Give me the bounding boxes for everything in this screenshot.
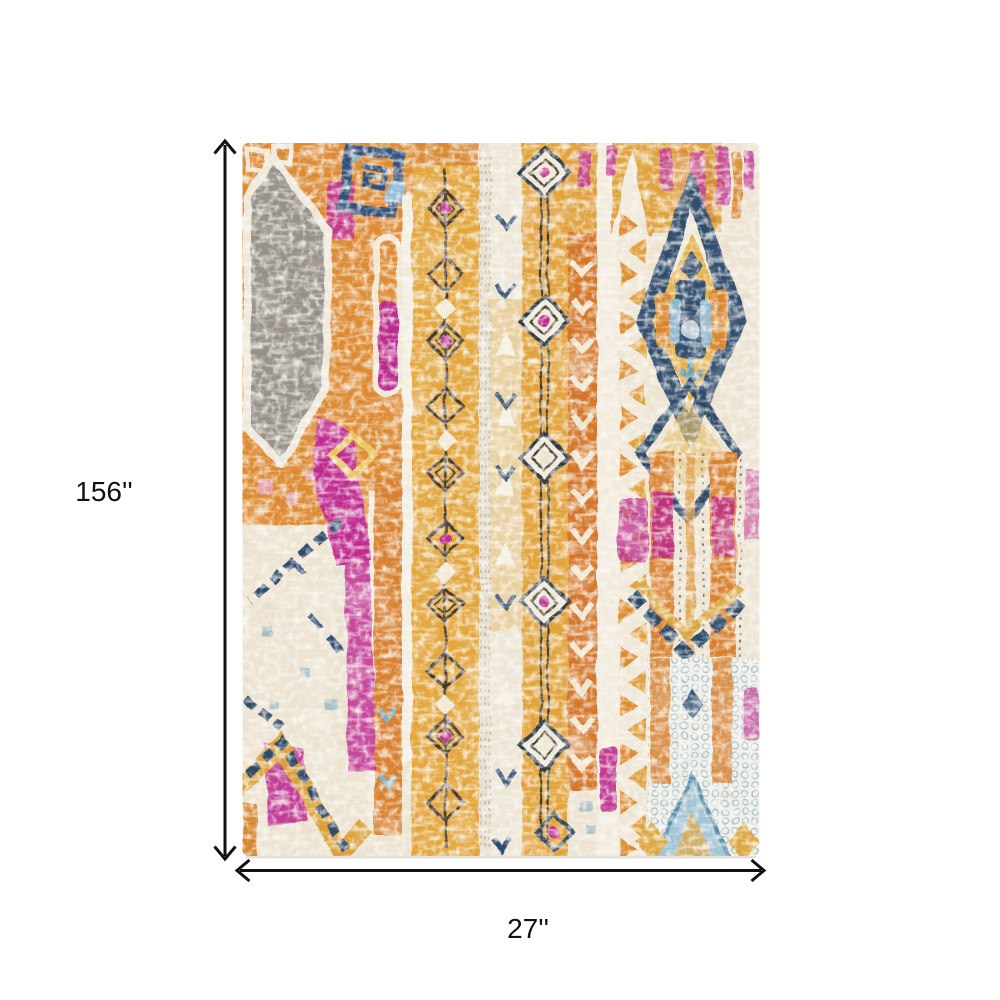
svg-text:27'': 27'' [507,913,549,944]
svg-text:156'': 156'' [75,476,132,507]
